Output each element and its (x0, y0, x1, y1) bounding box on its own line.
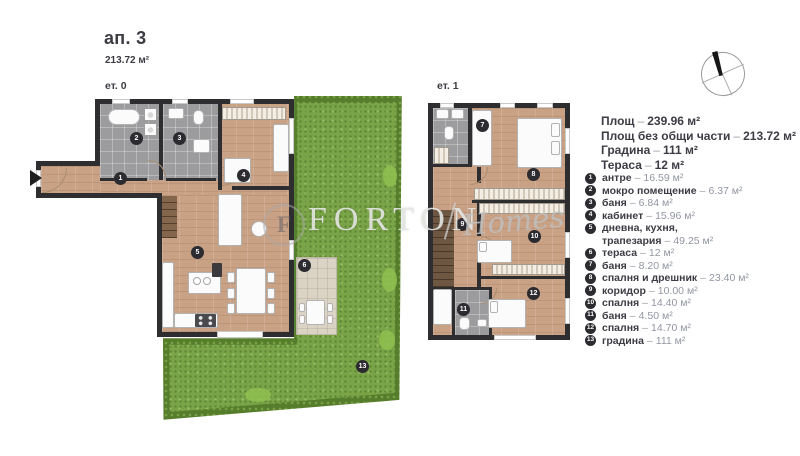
terrace-chair (327, 315, 333, 324)
terrace-table (306, 300, 325, 325)
sink (436, 109, 449, 119)
room-marker-7: 7 (476, 119, 489, 132)
chair (227, 272, 235, 283)
bathtub (108, 109, 140, 125)
wall (477, 276, 570, 279)
kitchen-counter (162, 262, 174, 328)
summary-row: Градина–111 м² (601, 143, 797, 158)
wardrobe (222, 107, 286, 120)
sofa (218, 194, 242, 246)
summary-row: Площ без общи части–213.72 м² (601, 129, 797, 144)
bathroom-cabinet (193, 139, 210, 153)
wall (36, 193, 162, 198)
window (537, 103, 553, 108)
wardrobe (492, 264, 565, 275)
staircase (433, 210, 454, 287)
summary-row: Тераса–12 м² (601, 158, 797, 173)
legend-item: 9коридор–10.00 м² (585, 285, 795, 298)
legend-item: 2мокро помещение–6.37 м² (585, 185, 795, 198)
room-marker-9: 9 (456, 218, 469, 231)
dressing-wardrobe (479, 203, 565, 214)
pillow (551, 123, 560, 137)
room-marker-12: 12 (527, 287, 540, 300)
stove (195, 314, 216, 327)
dressing-wardrobe (474, 188, 565, 200)
floor-label-first: ет. 1 (437, 80, 459, 92)
room-number-badge: 5 (585, 223, 596, 234)
window (289, 118, 294, 154)
legend-item: 5дневна, кухня, трапезария–49.25 м² (585, 222, 795, 247)
room-number-badge: 12 (585, 323, 596, 334)
chair (267, 303, 275, 314)
washing-machine (144, 108, 157, 121)
island-sink (193, 277, 201, 285)
room-marker-5: 5 (191, 246, 204, 259)
room-number-badge: 10 (585, 298, 596, 309)
room-marker-4: 4 (237, 169, 250, 182)
kitchen-hood (212, 263, 222, 277)
wall (166, 178, 216, 181)
room-number-badge: 2 (585, 185, 596, 196)
room-number-badge: 13 (585, 335, 596, 346)
sliding-door (217, 331, 263, 338)
room-marker-2: 2 (130, 132, 143, 145)
bush (245, 388, 271, 402)
compass-icon (694, 45, 752, 103)
room-number-badge: 8 (585, 273, 596, 284)
dining-table (236, 268, 266, 314)
room-marker-3: 3 (173, 132, 186, 145)
staircase (162, 196, 177, 238)
island-sink (203, 277, 211, 285)
terrace-chair (299, 303, 305, 312)
toilet (444, 126, 454, 140)
bush (383, 165, 397, 187)
terrace-chair (299, 315, 305, 324)
sink (451, 109, 464, 119)
floor-label-ground: ет. 0 (105, 80, 127, 92)
legend-item: 10спалня–14.40 м² (585, 297, 795, 310)
wall (433, 164, 472, 167)
room-marker-8: 8 (527, 168, 540, 181)
pillow (490, 301, 498, 313)
wall (452, 290, 455, 335)
room-marker-6: 6 (298, 259, 311, 272)
window (230, 99, 254, 104)
pillow (479, 242, 487, 252)
window (172, 99, 188, 104)
window (112, 99, 130, 104)
window (494, 335, 536, 340)
room-number-badge: 4 (585, 210, 596, 221)
room-marker-11: 11 (457, 303, 470, 316)
area-summary: Площ–239.96 м² Площ без общи части–213.7… (601, 114, 797, 172)
toilet (459, 317, 470, 330)
room-number-badge: 11 (585, 310, 596, 321)
room-number-badge: 3 (585, 198, 596, 209)
legend-item: 3баня–6.84 м² (585, 197, 795, 210)
toilet (193, 110, 204, 125)
legend-item: 11баня–4.50 м² (585, 310, 795, 323)
wardrobe-cabinet (433, 289, 452, 325)
room-marker-1: 1 (114, 172, 127, 185)
floor-plan-page: ап. 3 213.72 м² ет. 0 ет. 1 (0, 0, 800, 456)
chair (267, 288, 275, 299)
legend-item: 12спалня–14.70 м² (585, 322, 795, 335)
room-number-badge: 9 (585, 285, 596, 296)
entrance-arrow-icon (30, 170, 42, 186)
sink (168, 108, 184, 119)
window (440, 103, 454, 108)
terrace-door (289, 240, 294, 260)
legend-item: 4кабинет–15.96 м² (585, 210, 795, 223)
legend-item: 6тераса–12 м² (585, 247, 795, 260)
bush (382, 268, 397, 292)
window (565, 128, 570, 154)
wall (95, 99, 100, 166)
window (565, 298, 570, 324)
pillow (551, 141, 560, 155)
window (500, 103, 515, 108)
chair (267, 272, 275, 283)
wall (232, 186, 289, 190)
window (565, 232, 570, 258)
sink (477, 319, 487, 327)
room-number-badge: 1 (585, 173, 596, 184)
legend-item: 1антре–16.59 м² (585, 172, 795, 185)
coffee-table (251, 221, 267, 237)
apartment-total-area: 213.72 м² (105, 55, 149, 66)
legend-item: 7баня–8.20 м² (585, 260, 795, 273)
shower (434, 147, 449, 164)
desk (273, 124, 289, 172)
legend-item: 13градина–111 м² (585, 335, 795, 348)
room-number-badge: 6 (585, 248, 596, 259)
bush (379, 330, 395, 350)
page-title: ап. 3 (104, 28, 146, 49)
dryer (144, 123, 157, 136)
room-marker-13: 13 (356, 360, 369, 373)
room-marker-10: 10 (528, 230, 541, 243)
chair (227, 303, 235, 314)
terrace-chair (327, 303, 333, 312)
wall (36, 161, 100, 166)
legend-item: 8спалня и дрешник–23.40 м² (585, 272, 795, 285)
chair (227, 288, 235, 299)
summary-row: Площ–239.96 м² (601, 114, 797, 129)
room-legend: 1антре–16.59 м² 2мокро помещение–6.37 м²… (585, 172, 795, 347)
room-number-badge: 7 (585, 260, 596, 271)
